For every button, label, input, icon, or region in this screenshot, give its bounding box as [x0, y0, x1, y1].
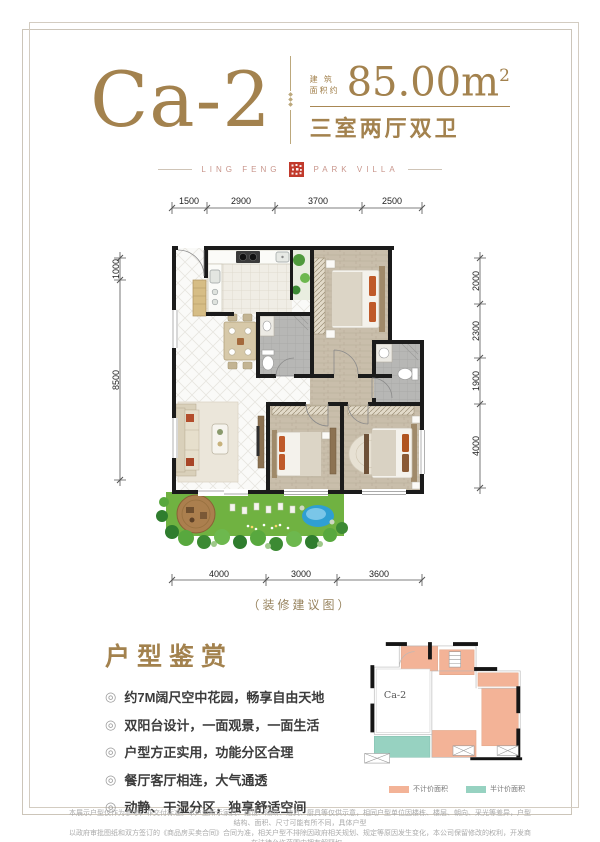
brand-text-right: PARK VILLA [313, 165, 398, 174]
svg-text:2300: 2300 [471, 321, 481, 341]
svg-text:4000: 4000 [209, 569, 229, 579]
features-section: 户型鉴赏 ◎ 约7M阔尺空中花园，畅享自由天地 ◎ 双阳台设计，一面观景，一面生… [105, 637, 370, 825]
brand-seal-icon [289, 162, 304, 177]
legend-swatch-icon [389, 786, 409, 793]
mini-plan-legend: 不计价面积 半计价面积 [389, 784, 525, 794]
svg-text:3600: 3600 [369, 569, 389, 579]
mini-plan: Ca-2 [357, 640, 525, 775]
area-label-line2: 面积约 [310, 85, 340, 96]
svg-text:3000: 3000 [291, 569, 311, 579]
svg-text:8500: 8500 [111, 370, 121, 390]
legend-swatch-icon [466, 786, 486, 793]
area-exponent: 2 [499, 66, 510, 86]
svg-text:1500: 1500 [179, 196, 199, 206]
legend-item: 不计价面积 [389, 784, 448, 794]
svg-text:2900: 2900 [231, 196, 251, 206]
feature-item: ◎ 餐厅客厅相连，大气通透 [105, 770, 370, 789]
mini-plan-drawing: Ca-2 [357, 640, 525, 770]
mini-plan-label: Ca-2 [384, 690, 406, 701]
disclaimer-line1: 本展示户型仅作为参考，非交付标准。本户型所示家具、摆设、隔断、洁具、厨具等仅供示… [66, 809, 534, 829]
divider-line-bottom [290, 110, 291, 145]
divider-ornament-icon: ◆ ◆ ◆ [288, 91, 293, 110]
svg-text:3700: 3700 [308, 196, 328, 206]
header: Ca-2 ◆ ◆ ◆ 建 筑 面积约 85.00m2 三室两厅双卫 [0, 56, 600, 144]
feature-item: ◎ 约7M阔尺空中花园，畅享自由天地 [105, 687, 370, 706]
svg-text:1000: 1000 [111, 259, 121, 279]
brand-rule-left [158, 169, 192, 170]
header-divider: ◆ ◆ ◆ [285, 56, 297, 144]
floorplan-drawing: 1500 2900 3700 2500 1000 8500 2000 2300 … [80, 192, 520, 602]
bullet-icon: ◎ [105, 773, 116, 786]
legend-item: 半计价面积 [466, 784, 525, 794]
divider-line-top [290, 56, 291, 91]
feature-item: ◎ 户型方正实用，功能分区合理 [105, 742, 370, 761]
unit-code: Ca-2 [90, 60, 272, 140]
area-label-line1: 建 筑 [310, 74, 340, 85]
feature-item: ◎ 双阳台设计，一面观景，一面生活 [105, 715, 370, 734]
svg-text:2000: 2000 [471, 271, 481, 291]
area-value: 85.00m2 [347, 57, 510, 101]
area-block: 建 筑 面积约 85.00m2 三室两厅双卫 [310, 57, 510, 143]
features-list: ◎ 约7M阔尺空中花园，畅享自由天地 ◎ 双阳台设计，一面观景，一面生活 ◎ 户… [105, 687, 370, 816]
brochure-page: Ca-2 ◆ ◆ ◆ 建 筑 面积约 85.00m2 三室两厅双卫 LING F… [0, 0, 600, 842]
svg-text:1900: 1900 [471, 371, 481, 391]
area-label: 建 筑 面积约 [310, 74, 340, 101]
svg-text:4000: 4000 [471, 436, 481, 456]
features-title: 户型鉴赏 [105, 637, 370, 673]
floorplan: 1500 2900 3700 2500 1000 8500 2000 2300 … [80, 192, 520, 602]
brand-rule-right [408, 169, 442, 170]
area-rule [310, 106, 510, 107]
layout-type: 三室两厅双卫 [310, 111, 510, 143]
svg-text:2500: 2500 [382, 196, 402, 206]
disclaimer: 本展示户型仅作为参考，非交付标准。本户型所示家具、摆设、隔断、洁具、厨具等仅供示… [66, 809, 534, 842]
bullet-icon: ◎ [105, 718, 116, 731]
brand-line: LING FENG PARK VILLA [0, 162, 600, 177]
sky-garden [156, 492, 348, 551]
bullet-icon: ◎ [105, 690, 116, 703]
brand-text-left: LING FENG [201, 165, 280, 174]
plan-caption: （装修建议图） [0, 596, 600, 613]
disclaimer-line2: 以政府审批图纸和双方签订的《商品房买卖合同》合同为准，相关户型不排除因政府相关规… [66, 829, 534, 842]
bullet-icon: ◎ [105, 745, 116, 758]
